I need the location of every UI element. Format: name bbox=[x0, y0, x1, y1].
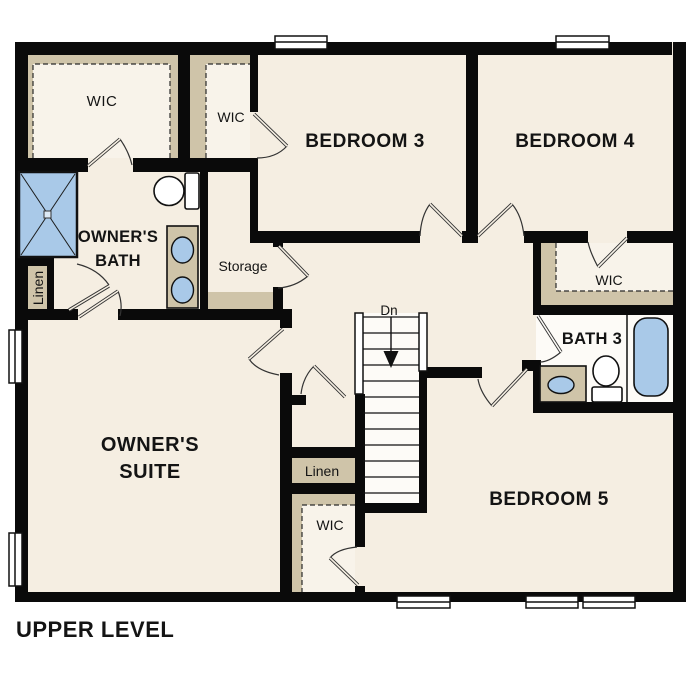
wall-exterior-right bbox=[673, 42, 686, 602]
window-bottom-2 bbox=[526, 596, 578, 608]
label-wic-hall: WIC bbox=[217, 109, 244, 125]
label-bath3: BATH 3 bbox=[562, 330, 622, 348]
toilet-owners-bath bbox=[154, 173, 199, 209]
vanity-owners-bath bbox=[167, 226, 198, 308]
label-storage: Storage bbox=[218, 258, 267, 274]
floor-plan: WIC WIC BEDROOM 3 BEDROOM 4 OWNER'S BATH… bbox=[0, 0, 687, 687]
wall-exterior-left bbox=[15, 42, 28, 602]
stair-rail-right bbox=[419, 313, 427, 371]
label-owners-suite-1: OWNER'S bbox=[101, 434, 199, 456]
sink bbox=[172, 237, 194, 263]
label-owners-suite-2: SUITE bbox=[119, 461, 180, 483]
window-top-bedroom3 bbox=[275, 36, 327, 49]
label-wic-bedroom5: WIC bbox=[316, 517, 343, 533]
label-stairs-dn: Dn bbox=[380, 303, 397, 318]
bathtub bbox=[634, 318, 668, 396]
window-bottom-1 bbox=[397, 596, 450, 608]
label-wic-owners: WIC bbox=[87, 93, 118, 110]
label-wic-bedroom4: WIC bbox=[595, 272, 622, 288]
shower bbox=[19, 172, 77, 257]
vanity-bath3 bbox=[540, 366, 586, 402]
label-bedroom3: BEDROOM 3 bbox=[305, 131, 425, 152]
storage-shelf bbox=[208, 292, 273, 309]
label-owners-bath-1: OWNER'S bbox=[78, 228, 158, 246]
label-bedroom5: BEDROOM 5 bbox=[489, 489, 609, 510]
window-left-lower bbox=[9, 533, 22, 586]
window-bottom-3 bbox=[583, 596, 635, 608]
sink bbox=[172, 277, 194, 303]
plan-title: UPPER LEVEL bbox=[16, 617, 174, 642]
toilet-bath3 bbox=[592, 356, 622, 402]
label-bedroom4: BEDROOM 4 bbox=[515, 131, 635, 152]
window-left-upper bbox=[9, 330, 22, 383]
stair-rail-left bbox=[355, 313, 363, 394]
window-top-bedroom4 bbox=[556, 36, 609, 49]
label-linen-left: Linen bbox=[30, 271, 46, 305]
label-owners-bath-2: BATH bbox=[95, 252, 141, 270]
floor-plan-canvas: WIC WIC BEDROOM 3 BEDROOM 4 OWNER'S BATH… bbox=[0, 0, 687, 687]
sink bbox=[548, 377, 574, 394]
floor-fills bbox=[15, 42, 686, 602]
label-linen-center: Linen bbox=[305, 463, 339, 479]
